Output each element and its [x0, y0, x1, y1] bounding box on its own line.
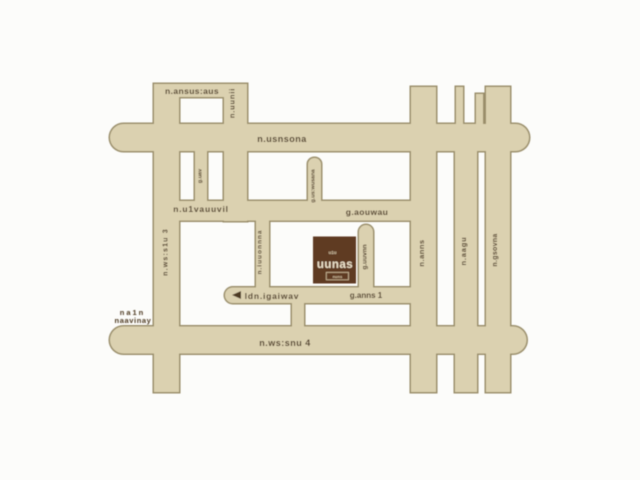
svg-text:n.anns: n.anns	[417, 239, 426, 266]
svg-text:g.uuvnn: g.uuvnn	[362, 244, 369, 269]
svg-text:n.ws:snu 4: n.ws:snu 4	[259, 338, 311, 348]
svg-text:n.ansus:aus: n.ansus:aus	[165, 86, 219, 96]
svg-text:nuns: nuns	[333, 274, 343, 279]
svg-text:u1u: u1u	[328, 250, 336, 255]
svg-text:n.aagu: n.aagu	[459, 237, 468, 266]
svg-text:ldn.igaiwav: ldn.igaiwav	[245, 291, 300, 301]
svg-text:n.iuuonnna: n.iuuonnna	[257, 229, 264, 274]
svg-text:g.uav: g.uav	[198, 168, 204, 183]
svg-text:n.usnsona: n.usnsona	[257, 134, 307, 144]
svg-text:n.gsovna: n.gsovna	[492, 233, 499, 266]
svg-text:naavinay: naavinay	[115, 316, 152, 325]
svg-text:g.aouwau: g.aouwau	[346, 207, 388, 217]
svg-text:n.ws:s1u 3: n.ws:s1u 3	[163, 228, 170, 276]
svg-text:n.u1vauuvil: n.u1vauuvil	[173, 204, 229, 214]
svg-text:g.anns 1: g.anns 1	[350, 291, 383, 300]
svg-text:uunas: uunas	[317, 259, 353, 271]
svg-text:n.uunii: n.uunii	[228, 88, 237, 118]
svg-text:g.us:wusana: g.us:wusana	[311, 168, 317, 202]
